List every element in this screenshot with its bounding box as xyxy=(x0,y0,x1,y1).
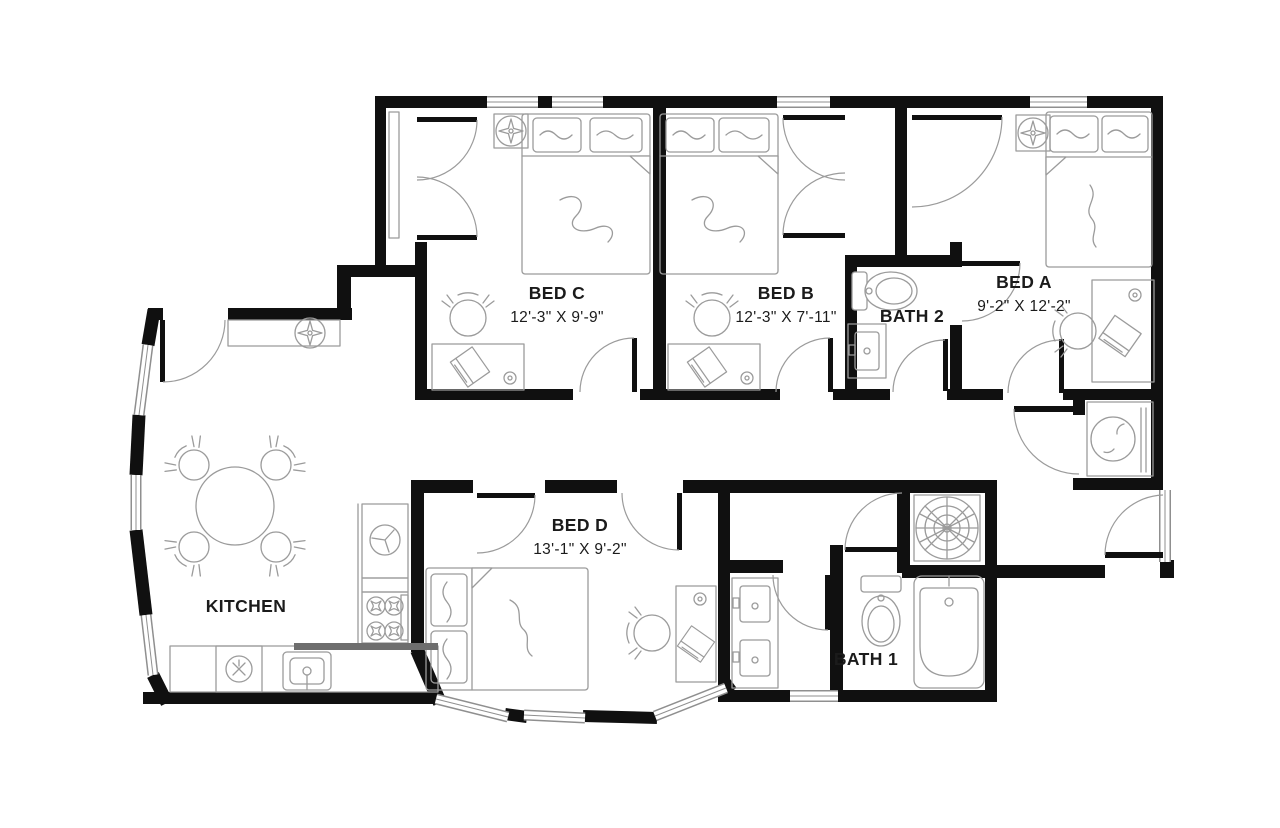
bed-b-door xyxy=(776,338,833,392)
room-label-kitchen: KITCHEN xyxy=(206,596,287,616)
room-label-bath-2: BATH 2 xyxy=(880,306,944,326)
room-dims-bed-c: 12'-3" X 9'-9" xyxy=(510,309,604,326)
desk-icon xyxy=(668,293,760,390)
bath-2-door xyxy=(893,339,948,392)
bed-icon xyxy=(426,568,588,690)
washer-closet-door xyxy=(1014,406,1079,474)
room-label-bed-b: BED B xyxy=(758,283,814,303)
window xyxy=(524,715,585,718)
ceiling-fan-icon xyxy=(295,318,325,348)
water-heater-icon xyxy=(914,495,980,561)
vestibule-closet-door xyxy=(912,115,1002,207)
room-dims-bed-a: 9'-2" X 12'-2" xyxy=(977,298,1071,315)
toilet-icon xyxy=(861,576,901,646)
bath-1-door xyxy=(845,493,902,552)
window xyxy=(436,699,508,717)
room-dims-bed-d: 13'-1" X 9'-2" xyxy=(533,541,627,558)
sink-icon xyxy=(283,652,331,690)
toilet-icon xyxy=(852,272,917,310)
room-label-bath-1: BATH 1 xyxy=(834,649,898,669)
entry-closet xyxy=(228,320,340,346)
bed-d-closet-door xyxy=(622,493,682,550)
desk-icon xyxy=(432,293,524,390)
ceiling-fan-icon xyxy=(1016,115,1050,151)
window xyxy=(146,615,153,675)
dishwasher-icon xyxy=(216,646,262,692)
room-label-bed-a: BED A xyxy=(996,272,1052,292)
hallway-exit-door xyxy=(1105,495,1163,558)
cabinet xyxy=(362,578,408,592)
vanity-area-door xyxy=(773,575,830,630)
bed-icon xyxy=(1046,112,1152,267)
bed-icon xyxy=(660,114,778,274)
bed-a-door xyxy=(1008,339,1064,393)
desk-icon xyxy=(1053,280,1154,382)
bed-c-closet-doors xyxy=(417,117,477,240)
bed-b-closet-doors xyxy=(783,115,845,238)
window xyxy=(655,688,726,716)
dining-table-icon xyxy=(161,432,309,580)
ceiling-fan-icon xyxy=(494,114,528,148)
desk-icon xyxy=(627,586,716,682)
washer-icon xyxy=(1087,402,1153,476)
floor-plan-canvas: BED C 12'-3" X 9'-9" BED B 12'-3" X 7'-1… xyxy=(0,0,1280,828)
bed-d-door xyxy=(477,493,535,553)
closet-rod xyxy=(389,112,399,238)
bed-icon xyxy=(522,114,650,274)
entry-door xyxy=(160,320,225,382)
room-label-bed-c: BED C xyxy=(529,283,585,303)
bed-c-door xyxy=(580,338,637,392)
room-dims-bed-b: 12'-3" X 7'-11" xyxy=(735,309,836,326)
double-vanity-icon xyxy=(732,578,778,688)
window xyxy=(139,345,148,415)
room-label-bed-d: BED D xyxy=(552,515,608,535)
bathtub-icon xyxy=(914,576,984,688)
stove-icon xyxy=(362,592,408,643)
room-labels: BED C 12'-3" X 9'-9" BED B 12'-3" X 7'-1… xyxy=(206,272,1071,669)
floor-plan: BED C 12'-3" X 9'-9" BED B 12'-3" X 7'-1… xyxy=(0,0,1280,828)
